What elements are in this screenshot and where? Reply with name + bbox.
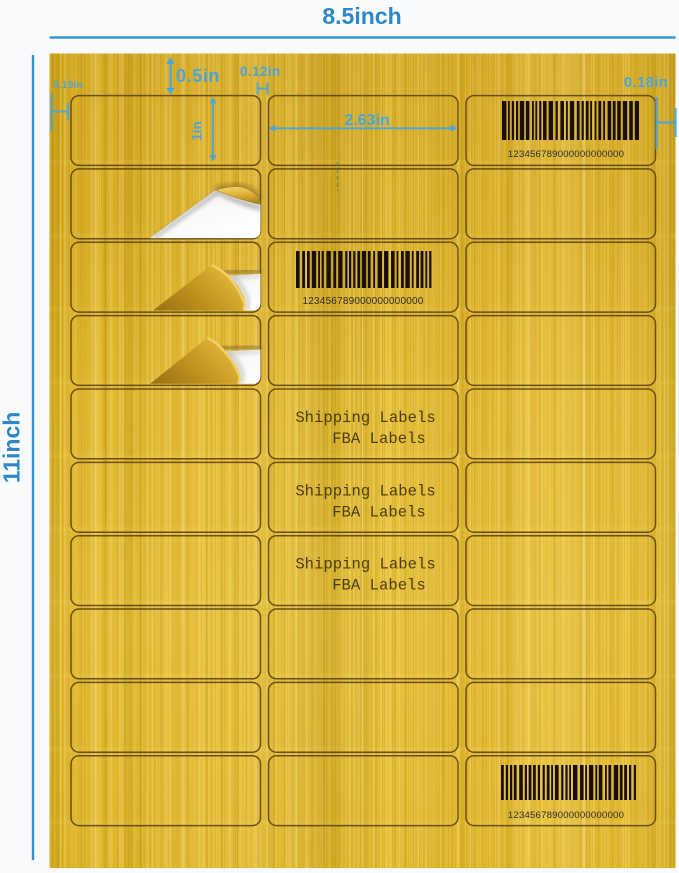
svg-text:Shipping Labels: Shipping Labels	[295, 556, 435, 574]
svg-text:123456789000000000000: 123456789000000000000	[303, 296, 424, 307]
svg-text:11inch: 11inch	[0, 412, 25, 484]
svg-text:123456789000000000000: 123456789000000000000	[508, 149, 624, 160]
svg-text:0.12in: 0.12in	[240, 64, 281, 79]
svg-text:FBA Labels: FBA Labels	[332, 503, 426, 521]
svg-text:123456789000000000000: 123456789000000000000	[508, 810, 624, 821]
svg-text:2.63in: 2.63in	[344, 112, 389, 129]
svg-text:FBA Labels: FBA Labels	[332, 430, 426, 448]
svg-text:0.19in: 0.19in	[53, 79, 83, 91]
svg-text:Shipping Labels: Shipping Labels	[295, 482, 435, 500]
svg-text:8.5inch: 8.5inch	[322, 3, 401, 29]
svg-text:Shipping Labels: Shipping Labels	[295, 409, 435, 427]
svg-text:0.5in: 0.5in	[176, 66, 220, 86]
svg-text:1in: 1in	[190, 121, 205, 141]
svg-text:FBA Labels: FBA Labels	[332, 577, 426, 595]
svg-text:0.18in: 0.18in	[624, 75, 668, 91]
